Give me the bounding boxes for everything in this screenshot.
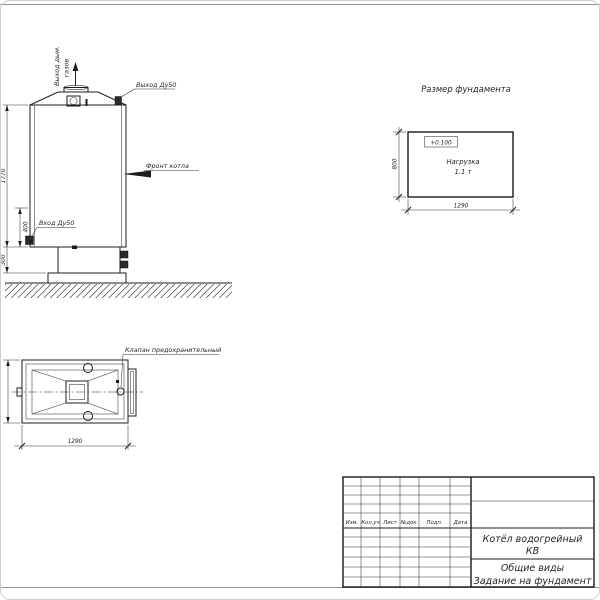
drawing-canvas: Выход дым. газов Выход Ду50 Фронт котла …: [0, 0, 600, 600]
outlet-label: Выход Ду50: [136, 81, 176, 89]
inlet-label: Вход Ду50: [39, 219, 74, 227]
load-label-line1: Нагрузка: [446, 158, 479, 166]
tb-col-koluch: Кол.уч: [361, 520, 379, 526]
plan-right-plate: [128, 369, 136, 416]
foundation-title: Размер фундамента: [421, 84, 511, 94]
drawing-sheet: Выход дым. газов Выход Ду50 Фронт котла …: [0, 0, 600, 600]
tb-doc-line2: Задание на фундамент: [474, 576, 592, 587]
skirt-fitting-upper: [120, 251, 128, 258]
tb-product-line1: Котёл водогрейный: [483, 534, 583, 545]
dim-base-height: 300: [1, 254, 7, 265]
plan-view-dimensions: 1290: [3, 360, 136, 450]
foundation-plan: Размер фундамента +0.100 Нагрузка 1.1 т …: [393, 84, 521, 215]
title-block: Изм. Кол.уч Лист №док. Подп. Дата Котёл …: [343, 477, 594, 587]
tb-col-izm: Изм.: [346, 520, 358, 526]
dim-inlet-height: 400: [24, 221, 30, 232]
plan-dim-length: 1290: [68, 439, 83, 445]
plan-right-plate-inner: [131, 372, 134, 414]
tb-product-line2: КВ: [526, 546, 539, 557]
hood-valve-circle: [70, 97, 77, 104]
dim-height: 1770: [1, 168, 7, 183]
front-view: Выход дым. газов Выход Ду50 Фронт котла …: [1, 46, 232, 283]
boiler-skirt: [58, 247, 120, 273]
load-label-line2: 1.1 т: [455, 168, 473, 176]
plan-small-dot: [116, 380, 119, 383]
safety-valve-leader: [121, 355, 123, 388]
tb-col-list: Лист: [382, 520, 397, 526]
plan-fitting-top: [84, 364, 93, 373]
flue-label-line1: Выход дым.: [53, 46, 61, 86]
safety-valve-label: Клапан предохранительный: [125, 346, 221, 354]
tb-doc-line1: Общие виды: [501, 563, 565, 574]
flue-label-line2: газов: [63, 59, 71, 78]
tb-col-ndok: №док.: [400, 520, 418, 526]
elevation-mark: +0.100: [430, 141, 452, 147]
skirt-fitting-lower: [120, 261, 128, 268]
plan-view: Клапан предохранительный 1290: [3, 346, 221, 450]
foundation-dim-width: 800: [393, 158, 399, 169]
flue-arrow-icon: [73, 62, 79, 71]
outlet-fitting: [115, 97, 122, 106]
tb-col-podp: Подп.: [426, 520, 442, 526]
outlet-leader: [122, 89, 135, 97]
foundation-slab: [48, 273, 126, 283]
boiler-hood: [30, 92, 126, 105]
plan-outer: [22, 360, 128, 423]
foundation-dim-length: 1290: [454, 204, 469, 210]
front-view-dimensions: 1770 400 300: [1, 105, 46, 273]
front-arrow-icon: [123, 171, 151, 178]
tb-col-data: Дата: [453, 520, 468, 526]
front-label: Фронт котла: [146, 162, 189, 170]
